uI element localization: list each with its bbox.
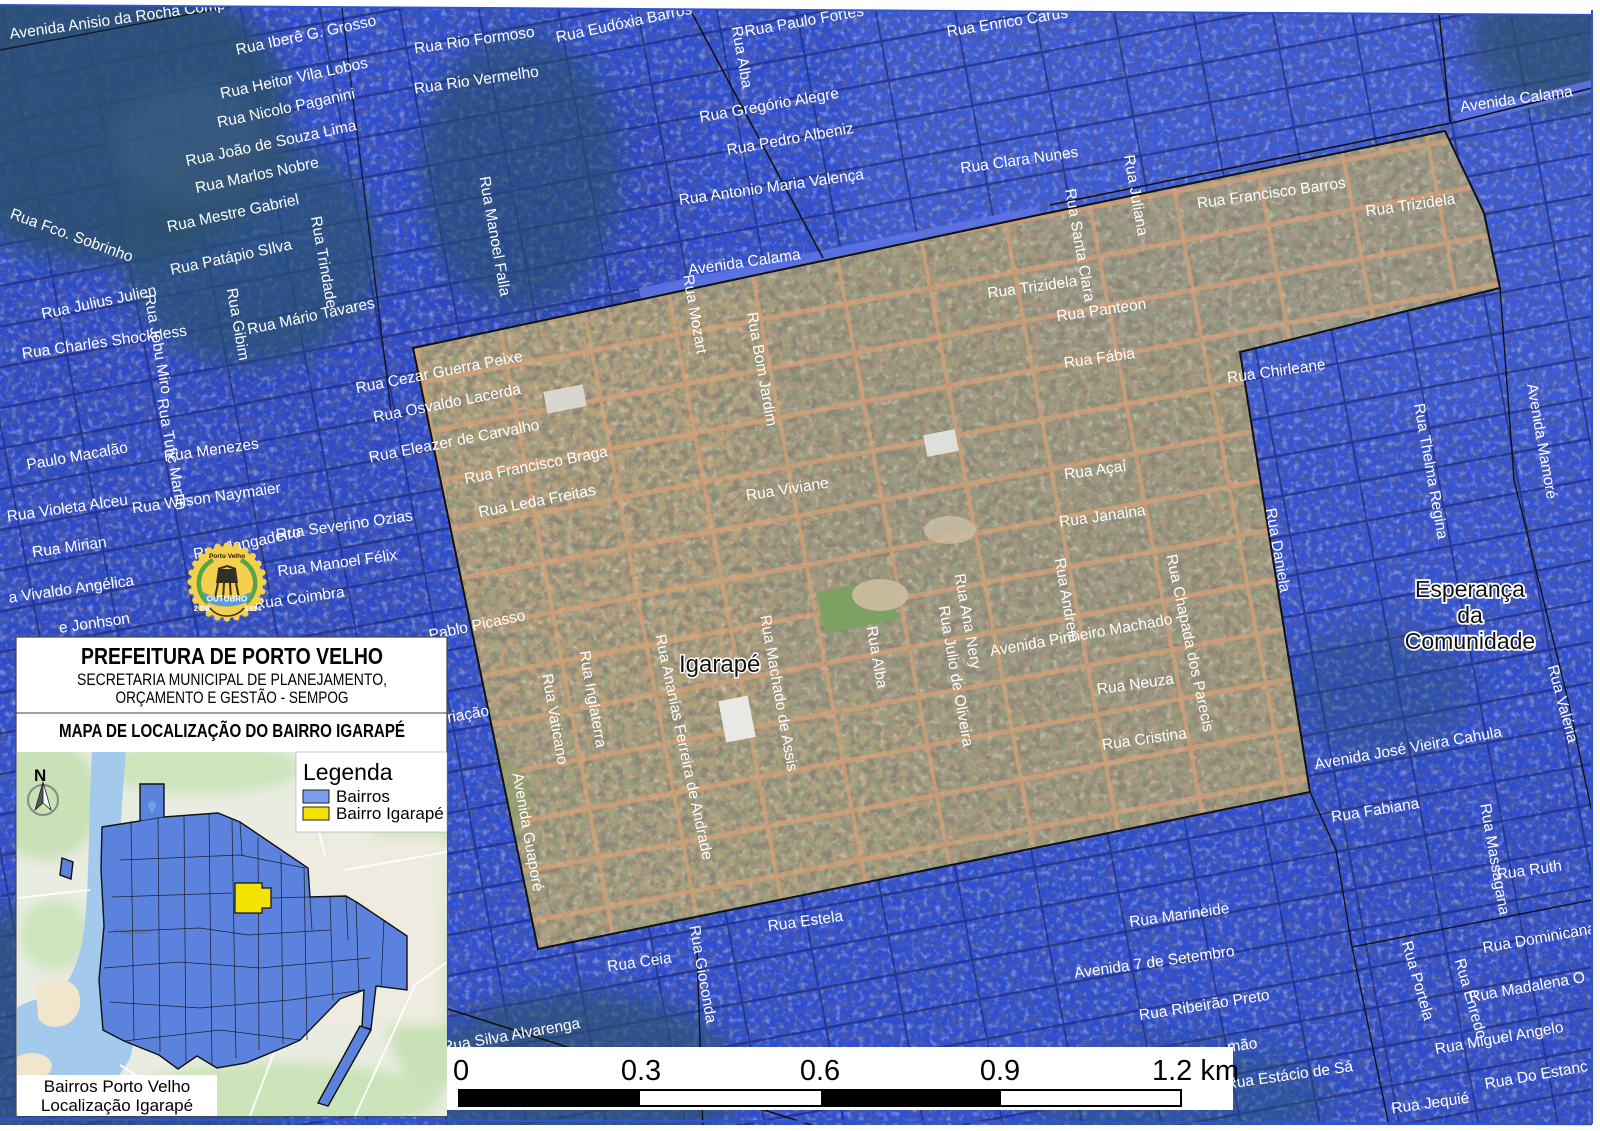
svg-text:0: 0 — [453, 1055, 469, 1087]
svg-text:Bairros Porto Velho: Bairros Porto Velho — [44, 1077, 190, 1096]
svg-text:PREFEITURA DE PORTO VELHO: PREFEITURA DE PORTO VELHO — [81, 643, 383, 669]
svg-text:ORÇAMENTO E GESTÃO - SEMPOG: ORÇAMENTO E GESTÃO - SEMPOG — [116, 687, 349, 707]
svg-text:Porto Velho: Porto Velho — [209, 553, 245, 560]
svg-text:0.6: 0.6 — [800, 1055, 840, 1087]
svg-text:Igarapé: Igarapé — [679, 651, 760, 678]
svg-text:Comunidade: Comunidade — [1405, 628, 1535, 654]
svg-text:N: N — [34, 766, 46, 785]
svg-text:da: da — [1457, 602, 1483, 628]
svg-text:Porto Velho: Porto Velho — [115, 929, 151, 936]
svg-text:Esperança: Esperança — [1415, 576, 1525, 602]
svg-text:2 DE: 2 DE — [194, 604, 211, 613]
svg-text:MAPA DE LOCALIZAÇÃO DO BAIRRO: MAPA DE LOCALIZAÇÃO DO BAIRRO IGARAPÉ — [59, 720, 405, 741]
svg-text:OUTUBRO: OUTUBRO — [207, 595, 247, 604]
svg-text:1914: 1914 — [245, 604, 263, 613]
svg-text:SECRETARIA MUNICIPAL DE PLANEJ: SECRETARIA MUNICIPAL DE PLANEJAMENTO, — [77, 671, 387, 689]
svg-text:0.9: 0.9 — [980, 1055, 1020, 1087]
svg-text:0.3: 0.3 — [621, 1055, 661, 1087]
svg-text:Legenda: Legenda — [303, 759, 393, 785]
svg-text:1.2 km: 1.2 km — [1152, 1055, 1239, 1087]
svg-text:Bairro Igarapé: Bairro Igarapé — [336, 804, 444, 823]
svg-text:Localização Igarapé: Localização Igarapé — [41, 1096, 193, 1115]
